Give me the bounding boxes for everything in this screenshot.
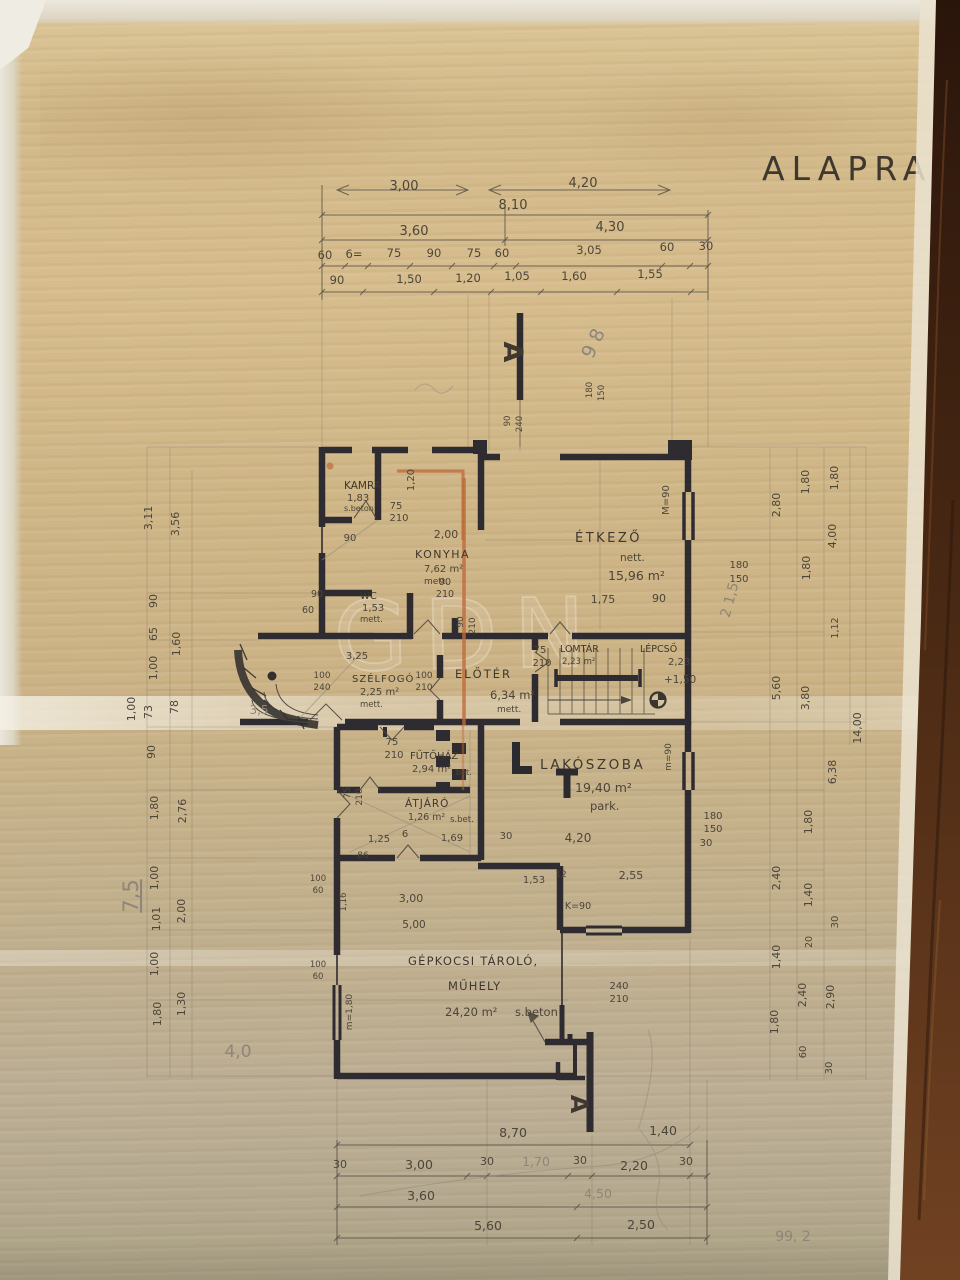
svg-text:4,00: 4,00 bbox=[826, 524, 839, 549]
svg-text:1,75: 1,75 bbox=[591, 593, 616, 606]
svg-text:2,23: 2,23 bbox=[668, 657, 690, 668]
svg-text:73: 73 bbox=[142, 705, 155, 719]
svg-text:1,05: 1,05 bbox=[504, 269, 530, 283]
svg-text:1,40: 1,40 bbox=[649, 1123, 677, 1138]
svg-text:240: 240 bbox=[609, 981, 628, 992]
svg-text:2,40: 2,40 bbox=[770, 866, 783, 891]
svg-text:90: 90 bbox=[145, 745, 158, 759]
svg-text:nett.: nett. bbox=[620, 552, 645, 564]
svg-text:KONYHA: KONYHA bbox=[415, 548, 470, 561]
svg-text:15,96 m²: 15,96 m² bbox=[608, 568, 665, 583]
svg-text:12: 12 bbox=[555, 870, 566, 880]
svg-text:mett.: mett. bbox=[360, 615, 383, 625]
svg-text:LAKÓSZOBA: LAKÓSZOBA bbox=[540, 755, 645, 773]
svg-text:30: 30 bbox=[700, 838, 713, 849]
svg-text:240: 240 bbox=[313, 683, 330, 693]
section-label-top: A bbox=[497, 342, 528, 363]
svg-text:1,16: 1,16 bbox=[339, 893, 349, 912]
svg-text:1,60: 1,60 bbox=[170, 632, 183, 657]
svg-text:90: 90 bbox=[330, 273, 345, 287]
svg-text:210: 210 bbox=[355, 788, 365, 805]
svg-text:75: 75 bbox=[467, 246, 482, 260]
construction-lines bbox=[147, 295, 866, 1245]
svg-text:m=1,80: m=1,80 bbox=[345, 994, 355, 1031]
svg-text:75: 75 bbox=[343, 787, 353, 798]
svg-text:1,70: 1,70 bbox=[522, 1154, 550, 1169]
svg-text:2 1,5: 2 1,5 bbox=[718, 581, 743, 620]
svg-text:3,00: 3,00 bbox=[390, 179, 419, 194]
svg-text:6,38: 6,38 bbox=[826, 760, 839, 785]
svg-text:LOMTÁR: LOMTÁR bbox=[560, 643, 599, 655]
svg-text:1,26 m²: 1,26 m² bbox=[408, 812, 445, 823]
svg-text:5,00: 5,00 bbox=[402, 919, 425, 931]
svg-text:90: 90 bbox=[456, 616, 466, 628]
svg-text:2,80: 2,80 bbox=[770, 493, 783, 518]
svg-text:1,00: 1,00 bbox=[148, 952, 161, 977]
svg-text:30: 30 bbox=[824, 1062, 835, 1075]
svg-text:210: 210 bbox=[532, 658, 551, 669]
svg-text:1,20: 1,20 bbox=[406, 469, 417, 491]
svg-text:3,25: 3,25 bbox=[346, 651, 368, 662]
svg-text:2,94 m²: 2,94 m² bbox=[412, 764, 451, 775]
svg-text:3,00: 3,00 bbox=[399, 892, 424, 905]
svg-text:4,20: 4,20 bbox=[565, 831, 592, 845]
svg-text:180: 180 bbox=[729, 560, 748, 571]
svg-text:3,80: 3,80 bbox=[799, 686, 812, 711]
svg-text:2,40: 2,40 bbox=[796, 983, 809, 1008]
svg-text:30: 30 bbox=[830, 916, 841, 929]
svg-text:s.bet.: s.bet. bbox=[450, 815, 474, 825]
svg-text:MŰHELY: MŰHELY bbox=[448, 978, 501, 993]
svg-text:1,60: 1,60 bbox=[561, 269, 587, 283]
svg-text:3,60: 3,60 bbox=[400, 224, 429, 239]
svg-text:30: 30 bbox=[480, 1155, 494, 1168]
svg-text:2,00: 2,00 bbox=[175, 899, 188, 924]
svg-text:30: 30 bbox=[699, 239, 714, 253]
svg-text:19,40 m²: 19,40 m² bbox=[575, 780, 632, 795]
svg-text:210: 210 bbox=[468, 617, 478, 634]
svg-text:2,76: 2,76 bbox=[176, 799, 189, 824]
svg-text:1,80: 1,80 bbox=[802, 810, 815, 835]
svg-text:180: 180 bbox=[585, 382, 595, 398]
svg-text:65: 65 bbox=[147, 627, 160, 641]
svg-text:75: 75 bbox=[390, 501, 403, 512]
svg-text:1,00: 1,00 bbox=[125, 697, 138, 722]
svg-text:86: 86 bbox=[357, 851, 369, 861]
svg-text:3,05: 3,05 bbox=[576, 243, 602, 257]
svg-text:90: 90 bbox=[503, 416, 513, 427]
svg-text:2,90: 2,90 bbox=[824, 985, 837, 1010]
svg-text:20: 20 bbox=[804, 936, 815, 948]
svg-text:210: 210 bbox=[415, 683, 432, 693]
svg-text:1,80: 1,80 bbox=[151, 1002, 164, 1027]
svg-text:1,53: 1,53 bbox=[362, 603, 384, 614]
svg-text:1,40: 1,40 bbox=[770, 945, 783, 970]
svg-text:3,5: 3,5 bbox=[249, 703, 268, 717]
svg-text:K=90: K=90 bbox=[565, 901, 591, 912]
svg-text:75: 75 bbox=[386, 737, 399, 748]
svg-text:90: 90 bbox=[147, 594, 160, 608]
svg-text:2,00: 2,00 bbox=[434, 528, 459, 541]
svg-text:210: 210 bbox=[389, 513, 408, 524]
svg-text:24,20 m²: 24,20 m² bbox=[445, 1005, 497, 1019]
svg-text:1,00: 1,00 bbox=[148, 866, 161, 891]
scanned-floorplan-photo: GDN bbox=[0, 0, 960, 1280]
svg-text:2,20: 2,20 bbox=[620, 1158, 648, 1173]
svg-text:90: 90 bbox=[311, 589, 323, 600]
room-lakoszoba: LAKÓSZOBA 19,40 m² park. bbox=[540, 755, 645, 813]
section-line-bottom: A bbox=[565, 1095, 593, 1114]
svg-text:75: 75 bbox=[387, 246, 402, 260]
top-dimension-labels: 3,00 4,20 8,10 3,60 4,30 606= 7590 7560 … bbox=[318, 176, 714, 287]
svg-text:60: 60 bbox=[495, 246, 510, 260]
svg-text:FŰTŐHÁZ: FŰTŐHÁZ bbox=[410, 748, 458, 762]
svg-text:1,50: 1,50 bbox=[396, 272, 422, 286]
svg-text:ÉTKEZŐ: ÉTKEZŐ bbox=[575, 530, 642, 546]
svg-text:150: 150 bbox=[703, 824, 722, 835]
svg-text:30: 30 bbox=[573, 1154, 587, 1167]
svg-text:1,12: 1,12 bbox=[830, 617, 841, 638]
svg-text:100: 100 bbox=[310, 960, 326, 970]
svg-text:4,0: 4,0 bbox=[224, 1042, 251, 1062]
svg-text:m=90: m=90 bbox=[664, 743, 674, 771]
svg-text:6=: 6= bbox=[346, 247, 363, 261]
svg-text:mett.: mett. bbox=[497, 705, 521, 715]
svg-text:1,53: 1,53 bbox=[523, 875, 545, 886]
left-dimension-labels: 3,11 3,56 90 65 1,00 1,60 73 78 1,00 90 … bbox=[125, 506, 189, 1027]
svg-text:ELŐTÉR: ELŐTÉR bbox=[455, 666, 512, 681]
svg-text:30: 30 bbox=[500, 831, 513, 842]
svg-text:1,55: 1,55 bbox=[637, 267, 663, 281]
svg-text:9 8: 9 8 bbox=[577, 325, 610, 362]
svg-text:bet.: bet. bbox=[456, 768, 472, 777]
svg-text:1,40: 1,40 bbox=[802, 883, 815, 908]
svg-text:5,60: 5,60 bbox=[474, 1218, 502, 1233]
svg-text:1,30: 1,30 bbox=[175, 992, 188, 1017]
svg-text:2,50: 2,50 bbox=[627, 1217, 655, 1232]
svg-text:4,20: 4,20 bbox=[569, 176, 598, 191]
svg-text:210: 210 bbox=[436, 589, 454, 600]
svg-text:3,11: 3,11 bbox=[142, 506, 155, 531]
svg-text:8,70: 8,70 bbox=[499, 1125, 527, 1140]
svg-text:1,83: 1,83 bbox=[347, 493, 369, 504]
svg-text:3,56: 3,56 bbox=[169, 512, 182, 537]
svg-text:6: 6 bbox=[402, 829, 408, 840]
drawing-title: ALAPRA bbox=[762, 149, 932, 188]
svg-text:1,80: 1,80 bbox=[799, 470, 812, 495]
svg-text:3,60: 3,60 bbox=[407, 1188, 435, 1203]
svg-text:GÉPKOCSI TÁROLÓ,: GÉPKOCSI TÁROLÓ, bbox=[408, 953, 538, 968]
svg-text:LÉPCSŐ: LÉPCSŐ bbox=[640, 643, 677, 655]
svg-text:75: 75 bbox=[534, 645, 547, 656]
svg-text:1,00: 1,00 bbox=[147, 656, 160, 681]
svg-text:100: 100 bbox=[310, 874, 326, 884]
svg-text:90: 90 bbox=[439, 577, 451, 588]
svg-text:100: 100 bbox=[313, 671, 330, 681]
svg-text:90: 90 bbox=[652, 592, 666, 605]
floorplan-drawing: GDN bbox=[0, 0, 960, 1280]
svg-text:4,50: 4,50 bbox=[584, 1186, 612, 1201]
svg-text:+1,50: +1,50 bbox=[664, 674, 696, 686]
bold-corner-marks bbox=[512, 742, 578, 1042]
bottom-dimension-labels: 8,70 30 3,00 30 1,70 30 2,20 30 3,60 4,5… bbox=[333, 1123, 693, 1233]
svg-text:1,80: 1,80 bbox=[828, 466, 841, 491]
svg-text:7,62 m²: 7,62 m² bbox=[424, 564, 463, 575]
svg-text:78: 78 bbox=[168, 700, 181, 714]
section-label-bottom: A bbox=[565, 1095, 593, 1114]
svg-text:1,01: 1,01 bbox=[150, 907, 163, 932]
room-garazs: GÉPKOCSI TÁROLÓ, MŰHELY 24,20 m² s.beton bbox=[408, 953, 558, 1019]
svg-text:14,00: 14,00 bbox=[851, 712, 864, 744]
svg-text:1,20: 1,20 bbox=[455, 271, 481, 285]
svg-text:90: 90 bbox=[427, 246, 442, 260]
svg-text:30: 30 bbox=[679, 1155, 693, 1168]
svg-text:99, 2: 99, 2 bbox=[775, 1229, 811, 1245]
svg-text:WC: WC bbox=[360, 591, 377, 602]
svg-text:180: 180 bbox=[703, 811, 722, 822]
svg-text:SZÉLFOGÓ: SZÉLFOGÓ bbox=[352, 672, 414, 685]
svg-text:1,80: 1,80 bbox=[800, 556, 813, 581]
svg-text:4,30: 4,30 bbox=[596, 220, 625, 235]
svg-text:2,25 m²: 2,25 m² bbox=[360, 687, 399, 698]
svg-text:210: 210 bbox=[384, 750, 403, 761]
room-atjaro: ÁTJÁRÓ 1,26 m² s.bet. bbox=[405, 797, 474, 825]
svg-text:60: 60 bbox=[798, 1046, 809, 1059]
svg-text:7,5: 7,5 bbox=[119, 879, 143, 912]
svg-text:8,10: 8,10 bbox=[499, 198, 528, 213]
svg-text:2,23 m²: 2,23 m² bbox=[562, 657, 595, 667]
svg-text:60: 60 bbox=[313, 886, 324, 896]
svg-text:1,80: 1,80 bbox=[768, 1010, 781, 1035]
svg-text:90: 90 bbox=[344, 533, 357, 544]
svg-text:60: 60 bbox=[313, 972, 324, 982]
svg-text:mett.: mett. bbox=[360, 700, 383, 710]
svg-text:60: 60 bbox=[660, 240, 675, 254]
svg-text:1,69: 1,69 bbox=[441, 833, 463, 844]
svg-text:s.beton: s.beton bbox=[515, 1005, 558, 1019]
svg-text:park.: park. bbox=[590, 799, 619, 813]
svg-text:M=90: M=90 bbox=[661, 485, 672, 515]
svg-text:210: 210 bbox=[609, 994, 628, 1005]
svg-text:1,80: 1,80 bbox=[148, 796, 161, 821]
svg-text:2,55: 2,55 bbox=[619, 869, 644, 882]
svg-text:3,00: 3,00 bbox=[405, 1157, 433, 1172]
svg-text:240: 240 bbox=[515, 416, 525, 432]
svg-text:6,34 m²: 6,34 m² bbox=[490, 688, 535, 702]
table-surface bbox=[888, 0, 960, 1280]
svg-text:60: 60 bbox=[302, 605, 314, 616]
svg-text:5,60: 5,60 bbox=[770, 676, 783, 701]
svg-text:ÁTJÁRÓ: ÁTJÁRÓ bbox=[405, 797, 449, 810]
svg-text:s.beton: s.beton bbox=[344, 504, 374, 513]
svg-text:KAMRA: KAMRA bbox=[344, 480, 382, 492]
room-etkezo: ÉTKEZŐ nett. 15,96 m² bbox=[575, 530, 665, 583]
svg-text:60: 60 bbox=[318, 248, 333, 262]
svg-text:150: 150 bbox=[597, 385, 607, 401]
svg-text:100: 100 bbox=[415, 671, 432, 681]
svg-text:30: 30 bbox=[333, 1158, 347, 1171]
svg-text:1,25: 1,25 bbox=[368, 834, 390, 845]
